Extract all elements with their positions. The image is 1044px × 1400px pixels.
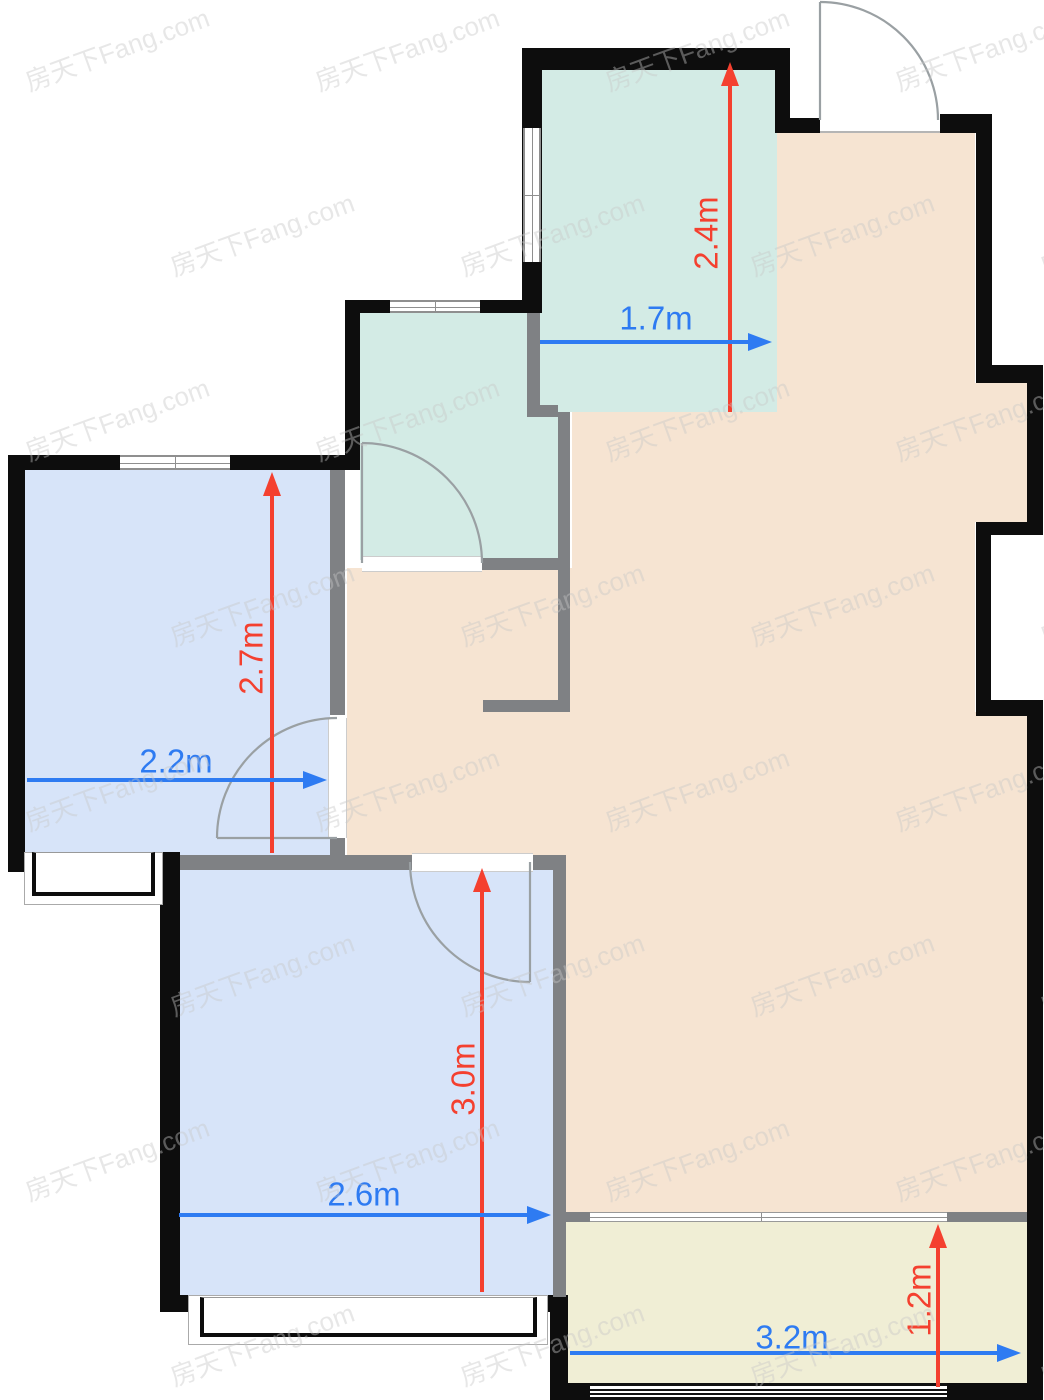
floor-plan: 2.4m 1.7m 2.7m 2.2m 3.0m 2.6m 3.2m 1.2m … xyxy=(0,0,1044,1400)
dimension-label-kitchen-width: 1.7m xyxy=(619,302,692,335)
dimension-arrow-line xyxy=(540,340,752,344)
bedroom-bottom-bay-window-frame xyxy=(200,1297,537,1337)
dimension-label-balcony-width: 3.2m xyxy=(755,1321,828,1354)
dimension-label-kitchen-depth: 2.4m xyxy=(690,196,723,269)
door-swings-layer xyxy=(0,0,1044,1400)
dimension-arrow-line xyxy=(270,492,274,853)
bathroom-door-arc xyxy=(362,443,482,563)
dimension-label-bedroom-left-depth: 2.7m xyxy=(235,621,268,694)
bedroom-bottom-door-arc xyxy=(410,862,530,982)
dimension-label-bedroom-left-width: 2.2m xyxy=(139,745,212,778)
bedroom-left-bay-window-frame xyxy=(32,852,155,896)
dimension-label-bedroom-bottom-depth: 3.0m xyxy=(447,1042,480,1115)
dimension-arrow-line xyxy=(728,82,732,412)
entry-door-arc xyxy=(820,2,938,120)
dimension-label-bedroom-bottom-width: 2.6m xyxy=(327,1178,400,1211)
dimension-label-balcony-depth: 1.2m xyxy=(903,1263,936,1336)
dimension-arrow-line xyxy=(179,1213,531,1217)
